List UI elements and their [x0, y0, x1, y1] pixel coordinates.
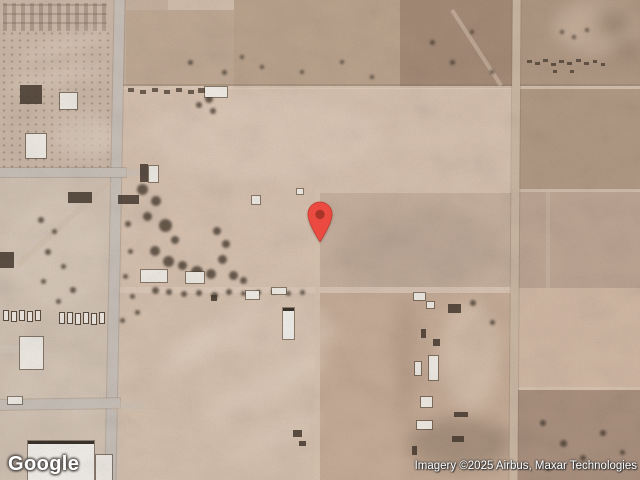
tree-blob — [470, 30, 474, 34]
tree-blob — [226, 289, 232, 295]
building — [149, 166, 158, 182]
tree-blob — [560, 440, 567, 447]
building — [8, 397, 22, 404]
tree-blob — [600, 430, 606, 436]
building — [252, 196, 260, 204]
debris-dash — [576, 59, 581, 62]
building — [454, 412, 468, 417]
building — [433, 339, 440, 346]
tree-blob — [490, 70, 494, 74]
building — [415, 362, 421, 375]
building — [429, 356, 438, 380]
tree-blob — [56, 299, 61, 304]
building — [427, 302, 434, 308]
building — [412, 446, 417, 455]
debris-dash — [551, 63, 556, 66]
map-pin[interactable] — [307, 201, 333, 243]
tree-blob — [540, 420, 546, 426]
tree-blob — [123, 274, 128, 279]
building — [75, 313, 81, 325]
building — [293, 430, 302, 437]
tree-blob — [300, 70, 304, 74]
tree-blob — [163, 256, 174, 267]
tree-blob — [181, 291, 187, 297]
building — [283, 308, 294, 339]
building — [246, 291, 259, 299]
debris-dash — [584, 62, 589, 65]
building — [186, 272, 204, 283]
debris-dash — [593, 60, 597, 63]
building — [141, 270, 167, 282]
field-boundary — [518, 189, 640, 192]
tree-blob — [45, 249, 51, 255]
building — [272, 288, 286, 294]
debris-dash — [176, 88, 182, 92]
tree-blob — [151, 196, 161, 206]
terrain-patch — [518, 288, 640, 390]
paved-road-horizontal-north — [0, 168, 126, 177]
building — [452, 436, 464, 442]
tree-blob — [430, 40, 435, 45]
tree-blob — [166, 289, 172, 295]
tree-blob — [210, 108, 216, 114]
building — [67, 312, 73, 324]
tree-blob — [137, 184, 148, 195]
building — [421, 329, 426, 338]
tree-blob — [218, 255, 227, 264]
tree-blob — [470, 300, 476, 306]
tree-blob — [370, 75, 374, 79]
building — [68, 192, 92, 203]
debris-dash — [543, 59, 548, 62]
building — [83, 312, 89, 324]
tree-blob — [260, 65, 264, 69]
tree-blob — [171, 236, 179, 244]
tree-blob — [159, 219, 172, 232]
building — [140, 164, 148, 182]
building — [414, 293, 425, 300]
orchard-rows — [3, 3, 107, 31]
terrain-smudge — [398, 292, 412, 420]
building — [417, 421, 432, 429]
building — [99, 312, 105, 324]
tree-blob — [188, 60, 193, 65]
terrain-wash — [440, 300, 500, 410]
tree-blob — [560, 30, 564, 34]
tree-blob — [572, 35, 576, 39]
building — [35, 310, 41, 321]
terrain-wash — [55, 115, 117, 160]
tree-blob — [213, 227, 221, 235]
building — [448, 304, 461, 313]
debris-dash — [553, 70, 557, 73]
google-logo[interactable]: Google — [8, 453, 79, 476]
debris-dash — [535, 62, 540, 65]
terrain-wash — [0, 360, 115, 420]
tree-blob — [585, 28, 589, 32]
tree-blob — [120, 318, 125, 323]
terrain-patch — [234, 0, 400, 88]
terrain-wash — [5, 195, 105, 310]
tree-blob — [130, 294, 135, 299]
debris-dash — [128, 88, 134, 92]
pin-body — [308, 202, 332, 242]
tree-blob — [152, 287, 159, 294]
building — [11, 311, 17, 322]
tree-blob — [240, 55, 244, 59]
debris-dash — [164, 90, 170, 94]
building — [27, 311, 33, 322]
tree-blob — [340, 60, 344, 64]
tree-blob — [196, 102, 202, 108]
debris-dash — [198, 88, 205, 93]
terrain-patch — [400, 0, 515, 88]
terrain-smudge — [612, 42, 638, 58]
tree-blob — [222, 70, 227, 75]
dirt-trail-east — [546, 191, 550, 288]
building — [0, 252, 14, 268]
map-attribution: Imagery ©2025 Airbus, Maxar Technologies — [415, 460, 637, 472]
building — [421, 397, 432, 407]
tree-blob — [240, 277, 247, 284]
building — [299, 441, 306, 446]
tree-blob — [178, 261, 187, 270]
building — [20, 85, 42, 104]
tree-blob — [222, 240, 230, 248]
debris-dash — [570, 70, 574, 73]
terrain-patch — [518, 88, 640, 190]
debris-dash — [601, 63, 605, 66]
building — [26, 134, 46, 158]
tree-blob — [52, 229, 57, 234]
tree-blob — [150, 246, 160, 256]
debris-dash — [527, 60, 532, 63]
debris-dash — [559, 60, 564, 63]
tree-blob — [286, 291, 291, 296]
building — [59, 312, 65, 324]
tree-blob — [38, 217, 44, 223]
tree-blob — [41, 279, 46, 284]
tree-blob — [143, 212, 152, 221]
terrain-smudge — [335, 205, 505, 290]
terrain-smudge — [598, 12, 632, 34]
building — [297, 189, 303, 194]
tree-blob — [128, 249, 133, 254]
tree-blob — [135, 310, 140, 315]
tree-blob — [206, 269, 216, 279]
building — [3, 310, 9, 321]
tree-blob — [125, 221, 131, 227]
terrain-patch — [518, 190, 640, 288]
debris-dash — [567, 62, 572, 65]
orchard-block — [126, 10, 234, 86]
tree-blob — [620, 450, 625, 455]
building — [118, 195, 139, 204]
tree-blob — [229, 271, 238, 280]
debris-dash — [188, 90, 194, 94]
tree-blob — [196, 290, 202, 296]
building — [96, 455, 112, 480]
debris-dash — [152, 88, 158, 92]
tree-blob — [450, 60, 455, 65]
map-viewport[interactable]: Google Imagery ©2025 Airbus, Maxar Techn… — [0, 0, 640, 480]
building — [19, 310, 25, 321]
tree-blob — [61, 264, 66, 269]
tree-blob — [70, 287, 76, 293]
road-stub — [118, 401, 144, 409]
pin-hole — [315, 210, 324, 219]
field-boundary — [518, 387, 640, 390]
debris-dash — [140, 90, 146, 94]
tree-blob — [490, 320, 495, 325]
building — [20, 337, 43, 369]
terrain-wash — [150, 95, 380, 180]
tree-blob — [300, 290, 305, 295]
building — [211, 295, 217, 301]
building — [60, 93, 77, 109]
building — [91, 313, 97, 325]
building — [205, 87, 227, 97]
